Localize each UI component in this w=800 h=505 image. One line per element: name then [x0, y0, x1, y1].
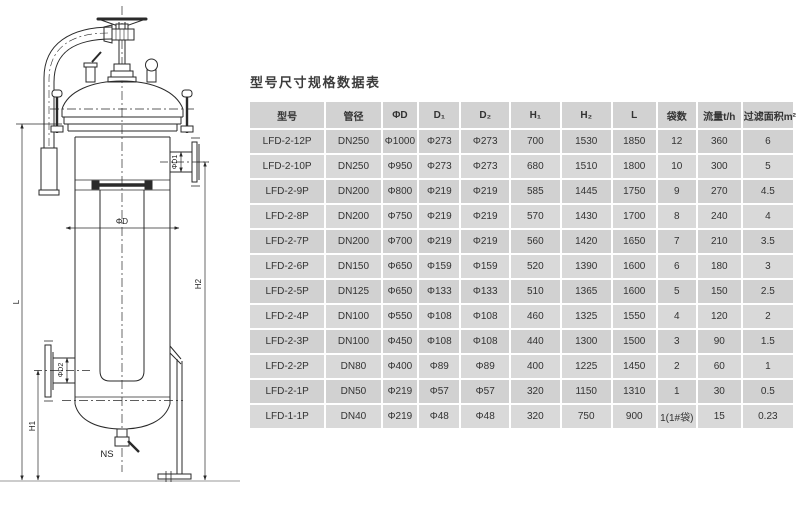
- table-cell: 150: [698, 280, 741, 303]
- table-cell: LFD-2-8P: [250, 205, 324, 228]
- table-cell: 240: [698, 205, 741, 228]
- table-cell: LFD-2-5P: [250, 280, 324, 303]
- table-cell: 300: [698, 155, 741, 178]
- column-header: 袋数: [658, 102, 696, 128]
- table-cell: Φ400: [383, 355, 418, 378]
- column-header: 过滤面积m²: [743, 102, 793, 128]
- table-cell: Φ273: [461, 155, 509, 178]
- table-cell: 320: [511, 405, 560, 428]
- table-cell: Φ950: [383, 155, 418, 178]
- table-cell: Φ219: [383, 405, 418, 428]
- table-cell: 585: [511, 180, 560, 203]
- table-cell: 1(1#袋): [658, 405, 696, 428]
- table-cell: Φ57: [461, 380, 509, 403]
- table-cell: 1500: [613, 330, 656, 353]
- table-cell: 700: [511, 130, 560, 153]
- table-cell: 90: [698, 330, 741, 353]
- table-cell: 7: [658, 230, 696, 253]
- table-cell: LFD-2-10P: [250, 155, 324, 178]
- table-cell: DN200: [326, 180, 380, 203]
- column-header: 型号: [250, 102, 324, 128]
- table-cell: 440: [511, 330, 560, 353]
- table-cell: 270: [698, 180, 741, 203]
- table-cell: 360: [698, 130, 741, 153]
- bag-filter-schematic: ΦD L H1 H2 ΦD1 ΦD2 NS: [0, 0, 244, 500]
- table-cell: 3: [743, 255, 793, 278]
- table-row: LFD-2-8PDN200Φ750Φ219Φ219570143017008240…: [250, 205, 793, 228]
- table-cell: 5: [658, 280, 696, 303]
- table-cell: Φ89: [419, 355, 459, 378]
- table-cell: 4: [658, 305, 696, 328]
- table-row: LFD-2-4PDN100Φ550Φ108Φ108460132515504120…: [250, 305, 793, 328]
- table-cell: 1600: [613, 280, 656, 303]
- table-cell: LFD-2-12P: [250, 130, 324, 153]
- table-cell: Φ273: [461, 130, 509, 153]
- table-cell: 1700: [613, 205, 656, 228]
- table-cell: LFD-2-2P: [250, 355, 324, 378]
- table-cell: Φ273: [419, 130, 459, 153]
- table-cell: Φ700: [383, 230, 418, 253]
- filter-vessel-drawing: ΦD L H1 H2 ΦD1 ΦD2 NS: [0, 0, 244, 500]
- table-cell: 2: [743, 305, 793, 328]
- table-cell: 400: [511, 355, 560, 378]
- table-cell: DN125: [326, 280, 380, 303]
- support-leg: [158, 346, 191, 482]
- table-cell: 1150: [562, 380, 611, 403]
- table-cell: 1325: [562, 305, 611, 328]
- table-cell: 120: [698, 305, 741, 328]
- column-header: H₁: [511, 102, 560, 128]
- table-cell: 8: [658, 205, 696, 228]
- table-cell: 460: [511, 305, 560, 328]
- table-cell: 15: [698, 405, 741, 428]
- label-inlet-diameter: ΦD1: [172, 155, 179, 170]
- table-cell: DN100: [326, 330, 380, 353]
- table-cell: 2.5: [743, 280, 793, 303]
- table-cell: 320: [511, 380, 560, 403]
- table-cell: 900: [613, 405, 656, 428]
- table-cell: Φ273: [419, 155, 459, 178]
- table-cell: Φ219: [383, 380, 418, 403]
- threaded-coupling: [112, 29, 134, 40]
- table-cell: 12: [658, 130, 696, 153]
- table-cell: Φ108: [461, 330, 509, 353]
- table-cell: 2: [658, 355, 696, 378]
- table-cell: 1430: [562, 205, 611, 228]
- table-cell: 1420: [562, 230, 611, 253]
- table-cell: Φ48: [461, 405, 509, 428]
- table-cell: 210: [698, 230, 741, 253]
- table-cell: 1750: [613, 180, 656, 203]
- table-row: LFD-1-1PDN40Φ219Φ48Φ483207509001(1#袋)150…: [250, 405, 793, 428]
- table-cell: 1550: [613, 305, 656, 328]
- table-row: LFD-2-2PDN80Φ400Φ89Φ89400122514502601: [250, 355, 793, 378]
- table-title: 型号尺寸规格数据表: [250, 72, 795, 91]
- table-cell: 3: [658, 330, 696, 353]
- table-cell: DN250: [326, 130, 380, 153]
- table-cell: Φ750: [383, 205, 418, 228]
- dome-head: [62, 81, 183, 109]
- table-cell: DN80: [326, 355, 380, 378]
- table-cell: 1530: [562, 130, 611, 153]
- table-cell: LFD-2-1P: [250, 380, 324, 403]
- table-cell: Φ219: [419, 205, 459, 228]
- table-cell: DN40: [326, 405, 380, 428]
- table-cell: DN50: [326, 380, 380, 403]
- table-cell: Φ108: [419, 330, 459, 353]
- table-cell: 1: [743, 355, 793, 378]
- table-row: LFD-2-5PDN125Φ650Φ133Φ133510136516005150…: [250, 280, 793, 303]
- table-cell: DN200: [326, 205, 380, 228]
- table-cell: 0.23: [743, 405, 793, 428]
- table-cell: 0.5: [743, 380, 793, 403]
- table-cell: Φ108: [461, 305, 509, 328]
- table-cell: 510: [511, 280, 560, 303]
- table-cell: Φ159: [419, 255, 459, 278]
- table-cell: 10: [658, 155, 696, 178]
- drain-nozzle: [115, 429, 139, 452]
- table-cell: 750: [562, 405, 611, 428]
- table-cell: 3.5: [743, 230, 793, 253]
- table-cell: 1600: [613, 255, 656, 278]
- table-cell: 560: [511, 230, 560, 253]
- eye-bolt-left: [51, 90, 63, 133]
- table-row: LFD-2-3PDN100Φ450Φ108Φ108440130015003901…: [250, 330, 793, 353]
- column-header: 流量t/h: [698, 102, 741, 128]
- table-cell: 1: [658, 380, 696, 403]
- spec-table-body: LFD-2-12PDN250Φ1000Φ273Φ2737001530185012…: [250, 130, 793, 428]
- table-row: LFD-2-9PDN200Φ800Φ219Φ219585144517509270…: [250, 180, 793, 203]
- table-cell: 1365: [562, 280, 611, 303]
- table-cell: Φ1000: [383, 130, 418, 153]
- table-cell: LFD-2-4P: [250, 305, 324, 328]
- table-cell: LFD-2-3P: [250, 330, 324, 353]
- spec-table: 型号管径ΦDD₁D₂H₁H₂L袋数流量t/h过滤面积m² LFD-2-12PDN…: [248, 100, 795, 430]
- table-cell: Φ550: [383, 305, 418, 328]
- table-cell: Φ219: [461, 180, 509, 203]
- table-cell: Φ89: [461, 355, 509, 378]
- column-header: ΦD: [383, 102, 418, 128]
- table-cell: 1510: [562, 155, 611, 178]
- table-cell: 1390: [562, 255, 611, 278]
- vent-valve: [84, 52, 101, 82]
- table-cell: LFD-2-6P: [250, 255, 324, 278]
- table-cell: 570: [511, 205, 560, 228]
- table-cell: DN100: [326, 305, 380, 328]
- table-cell: LFD-2-9P: [250, 180, 324, 203]
- gauge-fitting: [146, 59, 158, 82]
- table-cell: Φ133: [461, 280, 509, 303]
- table-cell: 5: [743, 155, 793, 178]
- label-total-length: L: [12, 299, 21, 304]
- table-cell: 180: [698, 255, 741, 278]
- column-header: D₂: [461, 102, 509, 128]
- table-cell: 6: [658, 255, 696, 278]
- spec-table-head: 型号管径ΦDD₁D₂H₁H₂L袋数流量t/h过滤面积m²: [250, 102, 793, 128]
- table-cell: Φ219: [419, 230, 459, 253]
- column-header: D₁: [419, 102, 459, 128]
- table-cell: Φ57: [419, 380, 459, 403]
- label-shell-diameter: ΦD: [116, 217, 128, 226]
- table-cell: 1310: [613, 380, 656, 403]
- label-h2: H2: [194, 278, 203, 289]
- table-cell: Φ133: [419, 280, 459, 303]
- table-row: LFD-2-10PDN250Φ950Φ273Φ27368015101800103…: [250, 155, 793, 178]
- table-cell: 680: [511, 155, 560, 178]
- table-cell: 4: [743, 205, 793, 228]
- table-cell: 1850: [613, 130, 656, 153]
- table-cell: DN250: [326, 155, 380, 178]
- table-cell: 1450: [613, 355, 656, 378]
- table-cell: Φ650: [383, 255, 418, 278]
- table-cell: Φ48: [419, 405, 459, 428]
- bottom-head: [75, 404, 170, 429]
- table-cell: 60: [698, 355, 741, 378]
- table-cell: Φ650: [383, 280, 418, 303]
- table-cell: 1225: [562, 355, 611, 378]
- table-cell: Φ219: [461, 205, 509, 228]
- table-cell: 6: [743, 130, 793, 153]
- table-cell: 4.5: [743, 180, 793, 203]
- table-cell: 1300: [562, 330, 611, 353]
- table-cell: 30: [698, 380, 741, 403]
- table-row: LFD-2-6PDN150Φ650Φ159Φ159520139016006180…: [250, 255, 793, 278]
- table-cell: 1445: [562, 180, 611, 203]
- label-outlet-diameter: ΦD2: [58, 363, 65, 378]
- table-cell: Φ108: [419, 305, 459, 328]
- table-cell: Φ219: [419, 180, 459, 203]
- table-cell: Φ450: [383, 330, 418, 353]
- table-cell: LFD-1-1P: [250, 405, 324, 428]
- table-cell: 1.5: [743, 330, 793, 353]
- table-row: LFD-2-12PDN250Φ1000Φ273Φ2737001530185012…: [250, 130, 793, 153]
- vessel-body: [34, 6, 209, 482]
- column-header: L: [613, 102, 656, 128]
- column-header: H₂: [562, 102, 611, 128]
- table-cell: LFD-2-7P: [250, 230, 324, 253]
- table-cell: 1650: [613, 230, 656, 253]
- table-cell: 520: [511, 255, 560, 278]
- column-header: 管径: [326, 102, 380, 128]
- table-cell: Φ159: [461, 255, 509, 278]
- spec-panel: 型号尺寸规格数据表 型号管径ΦDD₁D₂H₁H₂L袋数流量t/h过滤面积m² L…: [248, 72, 795, 430]
- table-cell: Φ800: [383, 180, 418, 203]
- table-cell: 1800: [613, 155, 656, 178]
- table-cell: 9: [658, 180, 696, 203]
- table-cell: DN150: [326, 255, 380, 278]
- table-row: LFD-2-1PDN50Φ219Φ57Φ57320115013101300.5: [250, 380, 793, 403]
- label-drain-ns: NS: [100, 449, 113, 460]
- table-cell: DN200: [326, 230, 380, 253]
- table-cell: Φ219: [461, 230, 509, 253]
- table-row: LFD-2-7PDN200Φ700Φ219Φ219560142016507210…: [250, 230, 793, 253]
- label-h1: H1: [28, 420, 37, 431]
- header-row: 型号管径ΦDD₁D₂H₁H₂L袋数流量t/h过滤面积m²: [250, 102, 793, 128]
